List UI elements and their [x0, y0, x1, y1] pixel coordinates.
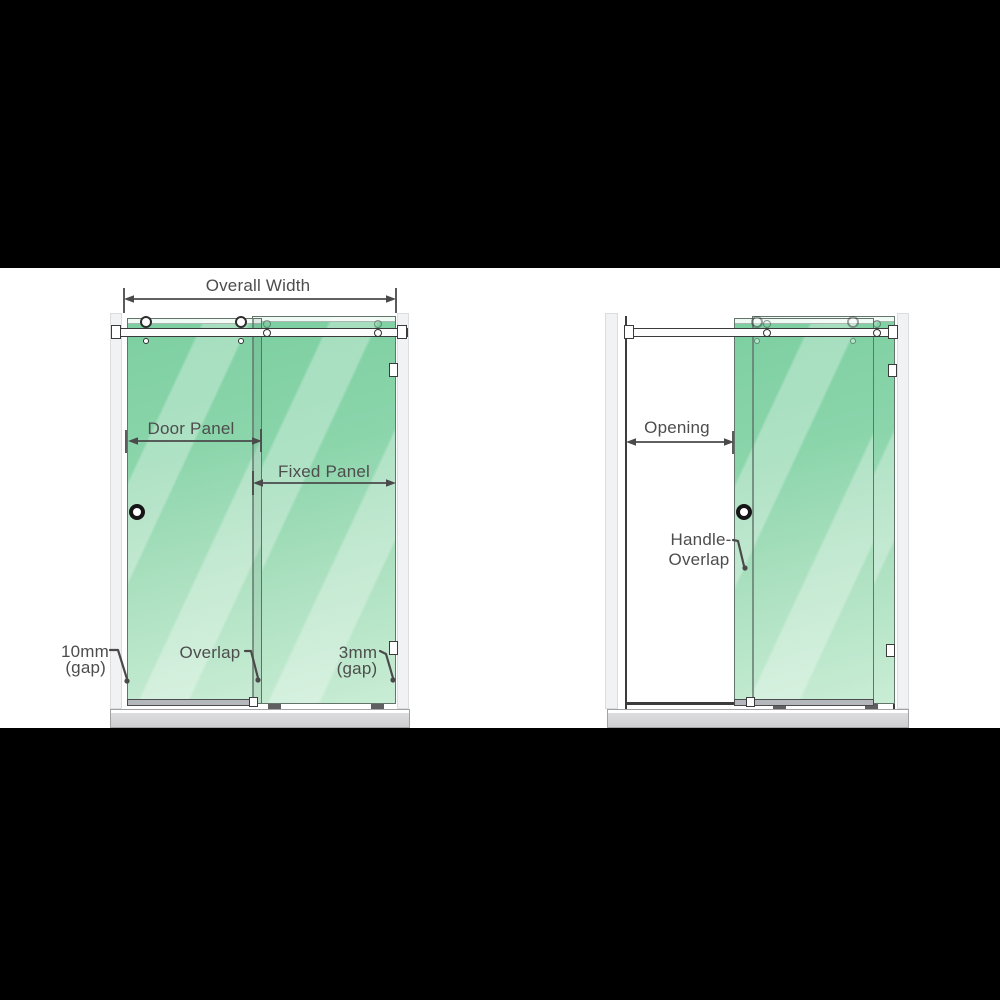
left-wall-jamb-line: [625, 316, 627, 709]
overlap-shade: [253, 319, 262, 703]
rail-end-bracket-icon: [624, 325, 634, 339]
fixed-panel-label: Fixed Panel: [278, 463, 370, 480]
bottom-stopper-icon: [249, 697, 258, 707]
opening-label: Opening: [644, 419, 710, 436]
bottom-stopper-icon: [746, 697, 755, 707]
roller-screw-ghost-icon: [754, 338, 760, 344]
overall-width-label: Overall Width: [206, 277, 311, 294]
panel-clamp-icon: [374, 329, 382, 337]
wall-bracket-icon: [886, 644, 895, 657]
roller-ghost-icon: [751, 316, 763, 328]
wall-bracket-icon: [888, 364, 897, 377]
roller-screw-ghost-icon: [850, 338, 856, 344]
clamp-ghost-icon: [263, 320, 271, 328]
wall-bracket-icon: [389, 641, 398, 655]
panel-foot-icon: [371, 704, 384, 709]
door-panel-glass: [734, 318, 874, 704]
door-panel-label: Door Panel: [147, 420, 234, 437]
handle-overlap-label-line1: Handle-: [671, 531, 732, 548]
door-bottom-rail: [734, 699, 874, 706]
wall-bracket-icon: [389, 363, 398, 377]
shower-tray: [110, 709, 410, 728]
top-letterbox-bar: [0, 0, 1000, 268]
floor-guide-track: [627, 702, 749, 705]
right-wall: [897, 313, 909, 709]
overlap-label: Overlap: [180, 644, 241, 661]
diagram-canvas: Overall Width Door Panel Fixed Panel 10m…: [0, 0, 1000, 1000]
panel-foot-icon: [268, 704, 281, 709]
handle-overlap-label-line2: Overlap: [669, 551, 730, 568]
fixed-panel-edge-line: [252, 319, 254, 703]
rail-end-bracket-icon: [888, 325, 898, 339]
roller-screw-icon: [143, 338, 149, 344]
left-wall: [605, 313, 618, 709]
roller-wheel-icon: [235, 316, 247, 328]
roller-screw-icon: [238, 338, 244, 344]
top-rail: [112, 328, 408, 337]
right-gap-suffix-label: (gap): [337, 660, 378, 677]
panel-clamp-icon: [263, 329, 271, 337]
panel-clamp-icon: [763, 329, 771, 337]
door-bottom-rail: [127, 699, 258, 706]
door-handle-icon: [129, 504, 145, 520]
left-wall: [110, 313, 122, 709]
panel-clamp-icon: [873, 329, 881, 337]
fixed-panel-edge-line: [752, 319, 754, 703]
clamp-ghost-icon: [873, 320, 881, 328]
top-rail: [626, 328, 897, 337]
rail-end-bracket-icon: [111, 325, 121, 339]
clamp-ghost-icon: [763, 320, 771, 328]
roller-wheel-icon: [140, 316, 152, 328]
clamp-ghost-icon: [374, 320, 382, 328]
door-handle-icon: [736, 504, 752, 520]
roller-ghost-icon: [847, 316, 859, 328]
shower-tray: [607, 709, 909, 728]
left-gap-suffix-label: (gap): [50, 659, 106, 676]
bottom-letterbox-bar: [0, 728, 1000, 1000]
rail-end-bracket-icon: [397, 325, 407, 339]
right-wall: [397, 313, 409, 709]
